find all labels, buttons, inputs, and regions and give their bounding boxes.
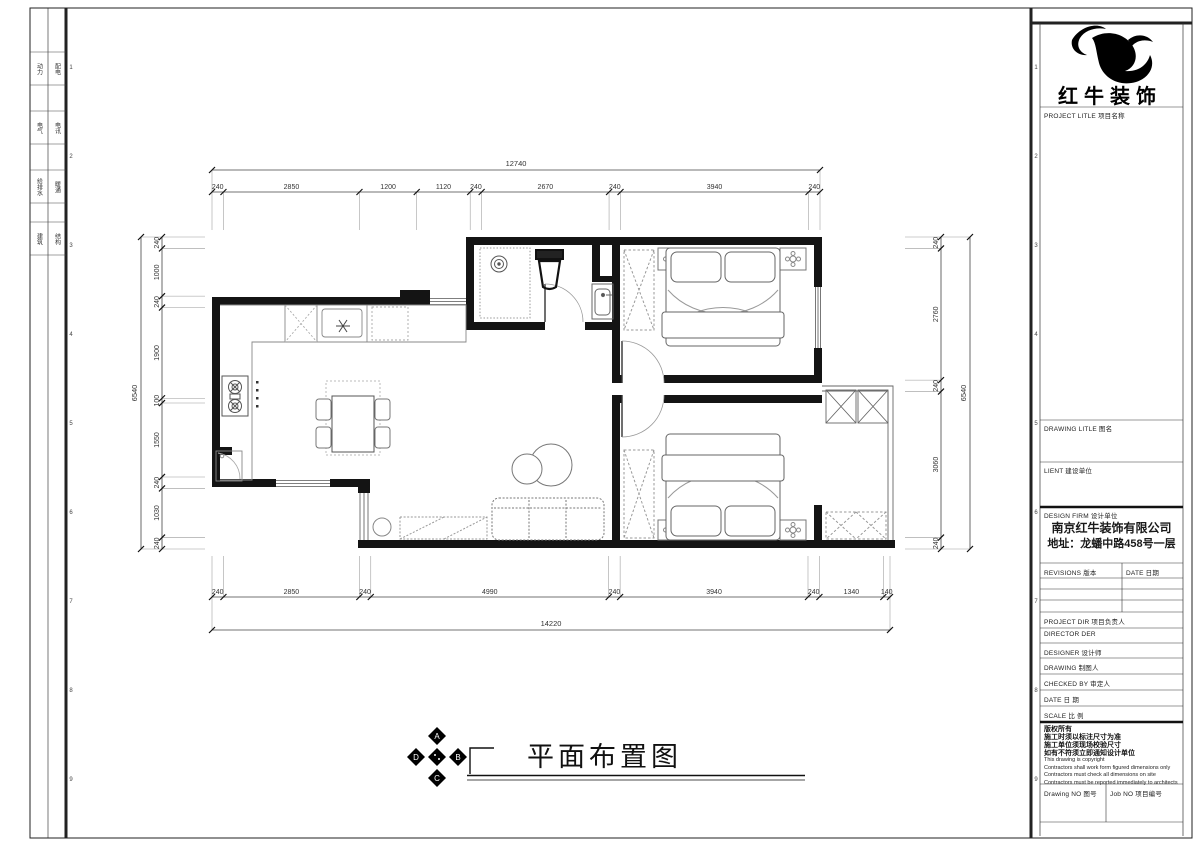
svg-text:240: 240 (154, 477, 161, 489)
dimension-annotations: 2402850120011202402670240394024012740240… (130, 159, 973, 633)
washbasin-icon (592, 284, 613, 319)
doors (545, 284, 664, 437)
pillow (671, 506, 721, 536)
svg-text:7: 7 (1034, 599, 1038, 605)
double-bed (662, 248, 784, 346)
director-label: DIRECTOR DER (1044, 631, 1096, 638)
checked-by-label: CHECKED BY 审定人 (1044, 678, 1110, 688)
date-label: DATE 日 期 (1044, 694, 1079, 704)
discipline-label: 结构 (49, 222, 65, 255)
compass-letter-a: A (434, 732, 440, 741)
svg-text:140: 140 (881, 589, 893, 596)
svg-text:3940: 3940 (707, 184, 723, 191)
sofa (492, 498, 604, 540)
firm-address: 地址：龙蟠中路458号一层 (1040, 535, 1183, 551)
chair (375, 427, 390, 448)
svg-text:7: 7 (69, 599, 73, 605)
svg-text:6540: 6540 (130, 385, 139, 402)
svg-text:240: 240 (933, 237, 940, 249)
drawing-no-label: Drawing NO 图号 (1044, 788, 1097, 798)
drawing-by-label: DRAWING 制图人 (1044, 662, 1099, 672)
wardrobe (624, 450, 654, 538)
project-title-label: PROJECT LITLE 项目名称 (1044, 110, 1125, 120)
discipline-label: 电气 (31, 111, 47, 144)
copyright-notes-en: This drawing is copyright Contractors sh… (1044, 757, 1178, 787)
balcony-cabinet (826, 512, 886, 539)
svg-text:100: 100 (154, 395, 161, 407)
svg-text:1: 1 (1034, 65, 1038, 71)
svg-text:4: 4 (1034, 332, 1038, 338)
stove-icon (222, 376, 248, 416)
wardrobe (624, 250, 654, 330)
kitchen-sink (322, 309, 362, 337)
pillow (725, 506, 775, 536)
svg-text:1: 1 (69, 65, 73, 71)
svg-text:3: 3 (1034, 243, 1038, 249)
bedroom1-window (816, 287, 821, 348)
hood-dots (256, 381, 259, 408)
kitchen-window (430, 299, 466, 305)
svg-text:2: 2 (1034, 154, 1038, 160)
compass-letter-c: C (434, 774, 440, 783)
chair (375, 399, 390, 420)
discipline-label: 暖通 (49, 170, 65, 203)
kitchen (216, 305, 466, 481)
svg-text:1900: 1900 (154, 345, 161, 361)
discipline-label: 建筑 (31, 222, 47, 255)
svg-text:240: 240 (609, 589, 621, 596)
discipline-label: 电讯 (49, 111, 65, 144)
compass-logo: A B C D (407, 727, 467, 787)
stool (373, 518, 391, 536)
dining-window (276, 481, 330, 487)
living-window (360, 493, 368, 540)
discipline-label: 给排水 (31, 170, 47, 203)
svg-text:4: 4 (69, 332, 73, 338)
pillow (671, 252, 721, 282)
svg-text:240: 240 (212, 589, 224, 596)
chair (316, 399, 331, 420)
compass-letter-d: D (413, 753, 419, 762)
svg-text:1550: 1550 (154, 432, 161, 448)
svg-text:6: 6 (1034, 510, 1038, 516)
svg-text:240: 240 (470, 184, 482, 191)
project-dir-label: PROJECT DIR 项目负责人 (1044, 616, 1125, 626)
shower-head-icon (491, 256, 507, 272)
svg-text:4990: 4990 (482, 589, 498, 596)
kitchen-counter (220, 305, 466, 480)
svg-text:1200: 1200 (380, 184, 396, 191)
revisions-label: REVISIONS 版本 (1044, 567, 1097, 577)
living-room (373, 444, 604, 540)
svg-text:2: 2 (69, 154, 73, 160)
revision-date-label: DATE 日期 (1126, 567, 1159, 577)
tv-cabinet (400, 517, 487, 539)
dining-set (316, 381, 390, 455)
client-label: LIENT 建设单位 (1044, 465, 1092, 475)
svg-text:2850: 2850 (284, 589, 300, 596)
coffee-table-small (512, 454, 542, 484)
svg-text:12740: 12740 (506, 159, 527, 168)
copyright-notes-cn: 版权所有 施工时须以标注尺寸为准 施工单位须现场校验尺寸 如有不符须立即通知设计… (1044, 726, 1135, 758)
scale-label: SCALE 比 例 (1044, 710, 1084, 720)
svg-text:240: 240 (933, 537, 940, 549)
svg-text:2850: 2850 (284, 184, 300, 191)
cabinet-hatch (285, 305, 317, 342)
svg-text:5: 5 (1034, 421, 1038, 427)
svg-text:240: 240 (609, 184, 621, 191)
svg-text:240: 240 (933, 380, 940, 392)
firm-name: 南京红牛装饰有限公司 (1040, 519, 1183, 536)
dining-table (332, 396, 374, 452)
svg-text:6540: 6540 (959, 385, 968, 402)
designer-label: DESIGNER 设计师 (1044, 647, 1102, 657)
chair (316, 427, 331, 448)
pillow (725, 252, 775, 282)
svg-text:3060: 3060 (933, 457, 940, 473)
svg-text:240: 240 (154, 296, 161, 308)
svg-text:240: 240 (212, 184, 224, 191)
balcony-outline (822, 386, 893, 540)
bedroom1-door (622, 341, 664, 383)
discipline-label: 动力 (31, 52, 47, 85)
svg-text:240: 240 (154, 537, 161, 549)
svg-text:1030: 1030 (154, 505, 161, 521)
walls (212, 237, 895, 548)
svg-text:3: 3 (69, 243, 73, 249)
svg-text:240: 240 (359, 589, 371, 596)
bedroom-2 (624, 434, 886, 540)
drawing-title: 平面布置图 (527, 735, 682, 774)
redbull-logo (1072, 26, 1153, 84)
svg-text:8: 8 (69, 688, 73, 694)
bedroom2-door (622, 395, 664, 437)
svg-text:3940: 3940 (706, 589, 722, 596)
svg-text:1120: 1120 (436, 184, 451, 191)
job-no-label: Job NO 项目编号 (1110, 788, 1162, 798)
brand-name: 红牛装饰 (1058, 80, 1162, 109)
toilet-icon (536, 250, 563, 289)
drawing-sheet: 2402850120011202402670240394024012740240… (0, 0, 1200, 844)
fridge (372, 307, 408, 340)
svg-text:240: 240 (154, 237, 161, 249)
discipline-label: 配电 (49, 52, 65, 85)
compass-letter-b: B (455, 753, 460, 762)
svg-text:2760: 2760 (933, 306, 940, 322)
bed-runner (662, 312, 784, 338)
svg-text:9: 9 (1034, 777, 1038, 783)
svg-text:14220: 14220 (541, 619, 562, 628)
svg-text:5: 5 (69, 421, 73, 427)
sheet-canvas: 2402850120011202402670240394024012740240… (0, 0, 1200, 844)
svg-text:2670: 2670 (538, 184, 554, 191)
svg-text:1000: 1000 (154, 264, 161, 280)
svg-text:240: 240 (808, 184, 820, 191)
double-bed (662, 434, 784, 540)
sink-icon (336, 320, 350, 332)
svg-text:240: 240 (808, 589, 820, 596)
drawing-title-label: DRAWING LITLE 图名 (1044, 423, 1112, 433)
svg-text:6: 6 (69, 510, 73, 516)
bed-runner (662, 455, 784, 481)
svg-text:8: 8 (1034, 688, 1038, 694)
floor-plan (212, 237, 895, 548)
bedroom-1 (624, 248, 806, 346)
svg-text:1340: 1340 (844, 589, 860, 596)
sheet-frame (30, 8, 1192, 838)
svg-text:9: 9 (69, 777, 73, 783)
